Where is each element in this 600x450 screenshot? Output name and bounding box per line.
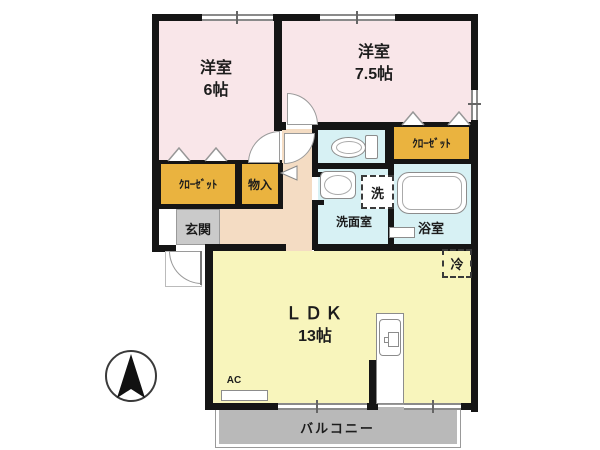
window-tick bbox=[236, 11, 238, 24]
bedroom-75-label: 洋室 7.5帖 bbox=[324, 42, 424, 85]
bifold-door-icon bbox=[401, 111, 425, 126]
bifold-door-icon bbox=[204, 147, 228, 162]
bedroom-75-size: 7.5帖 bbox=[324, 64, 424, 86]
closet-right: ｸﾛｰｾﾞｯﾄ bbox=[391, 124, 472, 162]
wall-segment bbox=[312, 200, 324, 205]
closet-left-label: ｸﾛｰｾﾞｯﾄ bbox=[179, 176, 218, 192]
entrance-door-leaf bbox=[200, 251, 202, 285]
washroom-label: 洗面室 bbox=[320, 213, 388, 230]
wall-segment bbox=[471, 14, 478, 90]
toilet-seat-icon bbox=[336, 141, 362, 154]
ac-label: AC bbox=[219, 375, 249, 386]
ldk-size: 13帖 bbox=[245, 326, 385, 348]
north-arrow-icon bbox=[105, 348, 157, 404]
wall-segment bbox=[205, 403, 278, 410]
window-tick bbox=[316, 400, 318, 413]
window-tick bbox=[432, 400, 434, 413]
washer-space: 洗 bbox=[361, 175, 394, 209]
wall-segment bbox=[152, 14, 159, 252]
toilet-tank-icon bbox=[365, 135, 378, 159]
balcony-label: バルコニー bbox=[260, 418, 415, 437]
wall-segment bbox=[395, 14, 478, 21]
bathroom-label: 浴室 bbox=[400, 218, 462, 237]
bifold-door-icon bbox=[167, 147, 191, 162]
ldk-name: ＬＤＫ bbox=[245, 303, 385, 326]
window-symbol bbox=[471, 90, 478, 120]
wall-segment bbox=[205, 245, 213, 410]
ldk-label: ＬＤＫ 13帖 bbox=[245, 303, 385, 348]
bathtub-inner-icon bbox=[402, 176, 462, 210]
storage-box: 物入 bbox=[239, 161, 281, 207]
washer-label: 洗 bbox=[371, 183, 384, 202]
wall-segment bbox=[369, 360, 376, 407]
wall-segment bbox=[312, 203, 318, 250]
fridge-label: 冷 bbox=[450, 254, 463, 273]
window-tick bbox=[356, 11, 358, 24]
opening-marker-icon bbox=[280, 165, 299, 181]
bifold-door-icon bbox=[447, 111, 471, 126]
closet-right-label: ｸﾛｰｾﾞｯﾄ bbox=[412, 135, 451, 151]
wall-segment bbox=[471, 120, 478, 412]
wall-segment bbox=[312, 163, 392, 169]
wall-segment bbox=[274, 14, 282, 131]
wall-segment bbox=[205, 244, 286, 251]
fridge-space: 冷 bbox=[442, 249, 472, 278]
wall-segment bbox=[152, 14, 202, 21]
bedroom-75-name: 洋室 bbox=[324, 42, 424, 64]
washbasin-bowl-icon bbox=[324, 175, 352, 195]
floor-plan: ｸﾛｰｾﾞｯﾄ 物入 ｸﾛｰｾﾞｯﾄ 洗 冷 AC 洋室 bbox=[0, 0, 600, 450]
window-symbol bbox=[278, 403, 367, 410]
window-tick bbox=[468, 103, 481, 105]
bedroom-6-label: 洋室 6帖 bbox=[166, 58, 266, 101]
entrance-label: 玄関 bbox=[176, 219, 220, 238]
ac-unit-icon bbox=[221, 390, 268, 401]
kitchen-faucet-icon bbox=[388, 332, 399, 347]
bedroom-6-size: 6帖 bbox=[166, 80, 266, 102]
hallway-floor bbox=[220, 209, 312, 245]
storage-label: 物入 bbox=[248, 176, 272, 193]
wall-segment bbox=[312, 122, 318, 175]
bedroom-6-name: 洋室 bbox=[166, 58, 266, 80]
closet-left: ｸﾛｰｾﾞｯﾄ bbox=[158, 161, 238, 207]
